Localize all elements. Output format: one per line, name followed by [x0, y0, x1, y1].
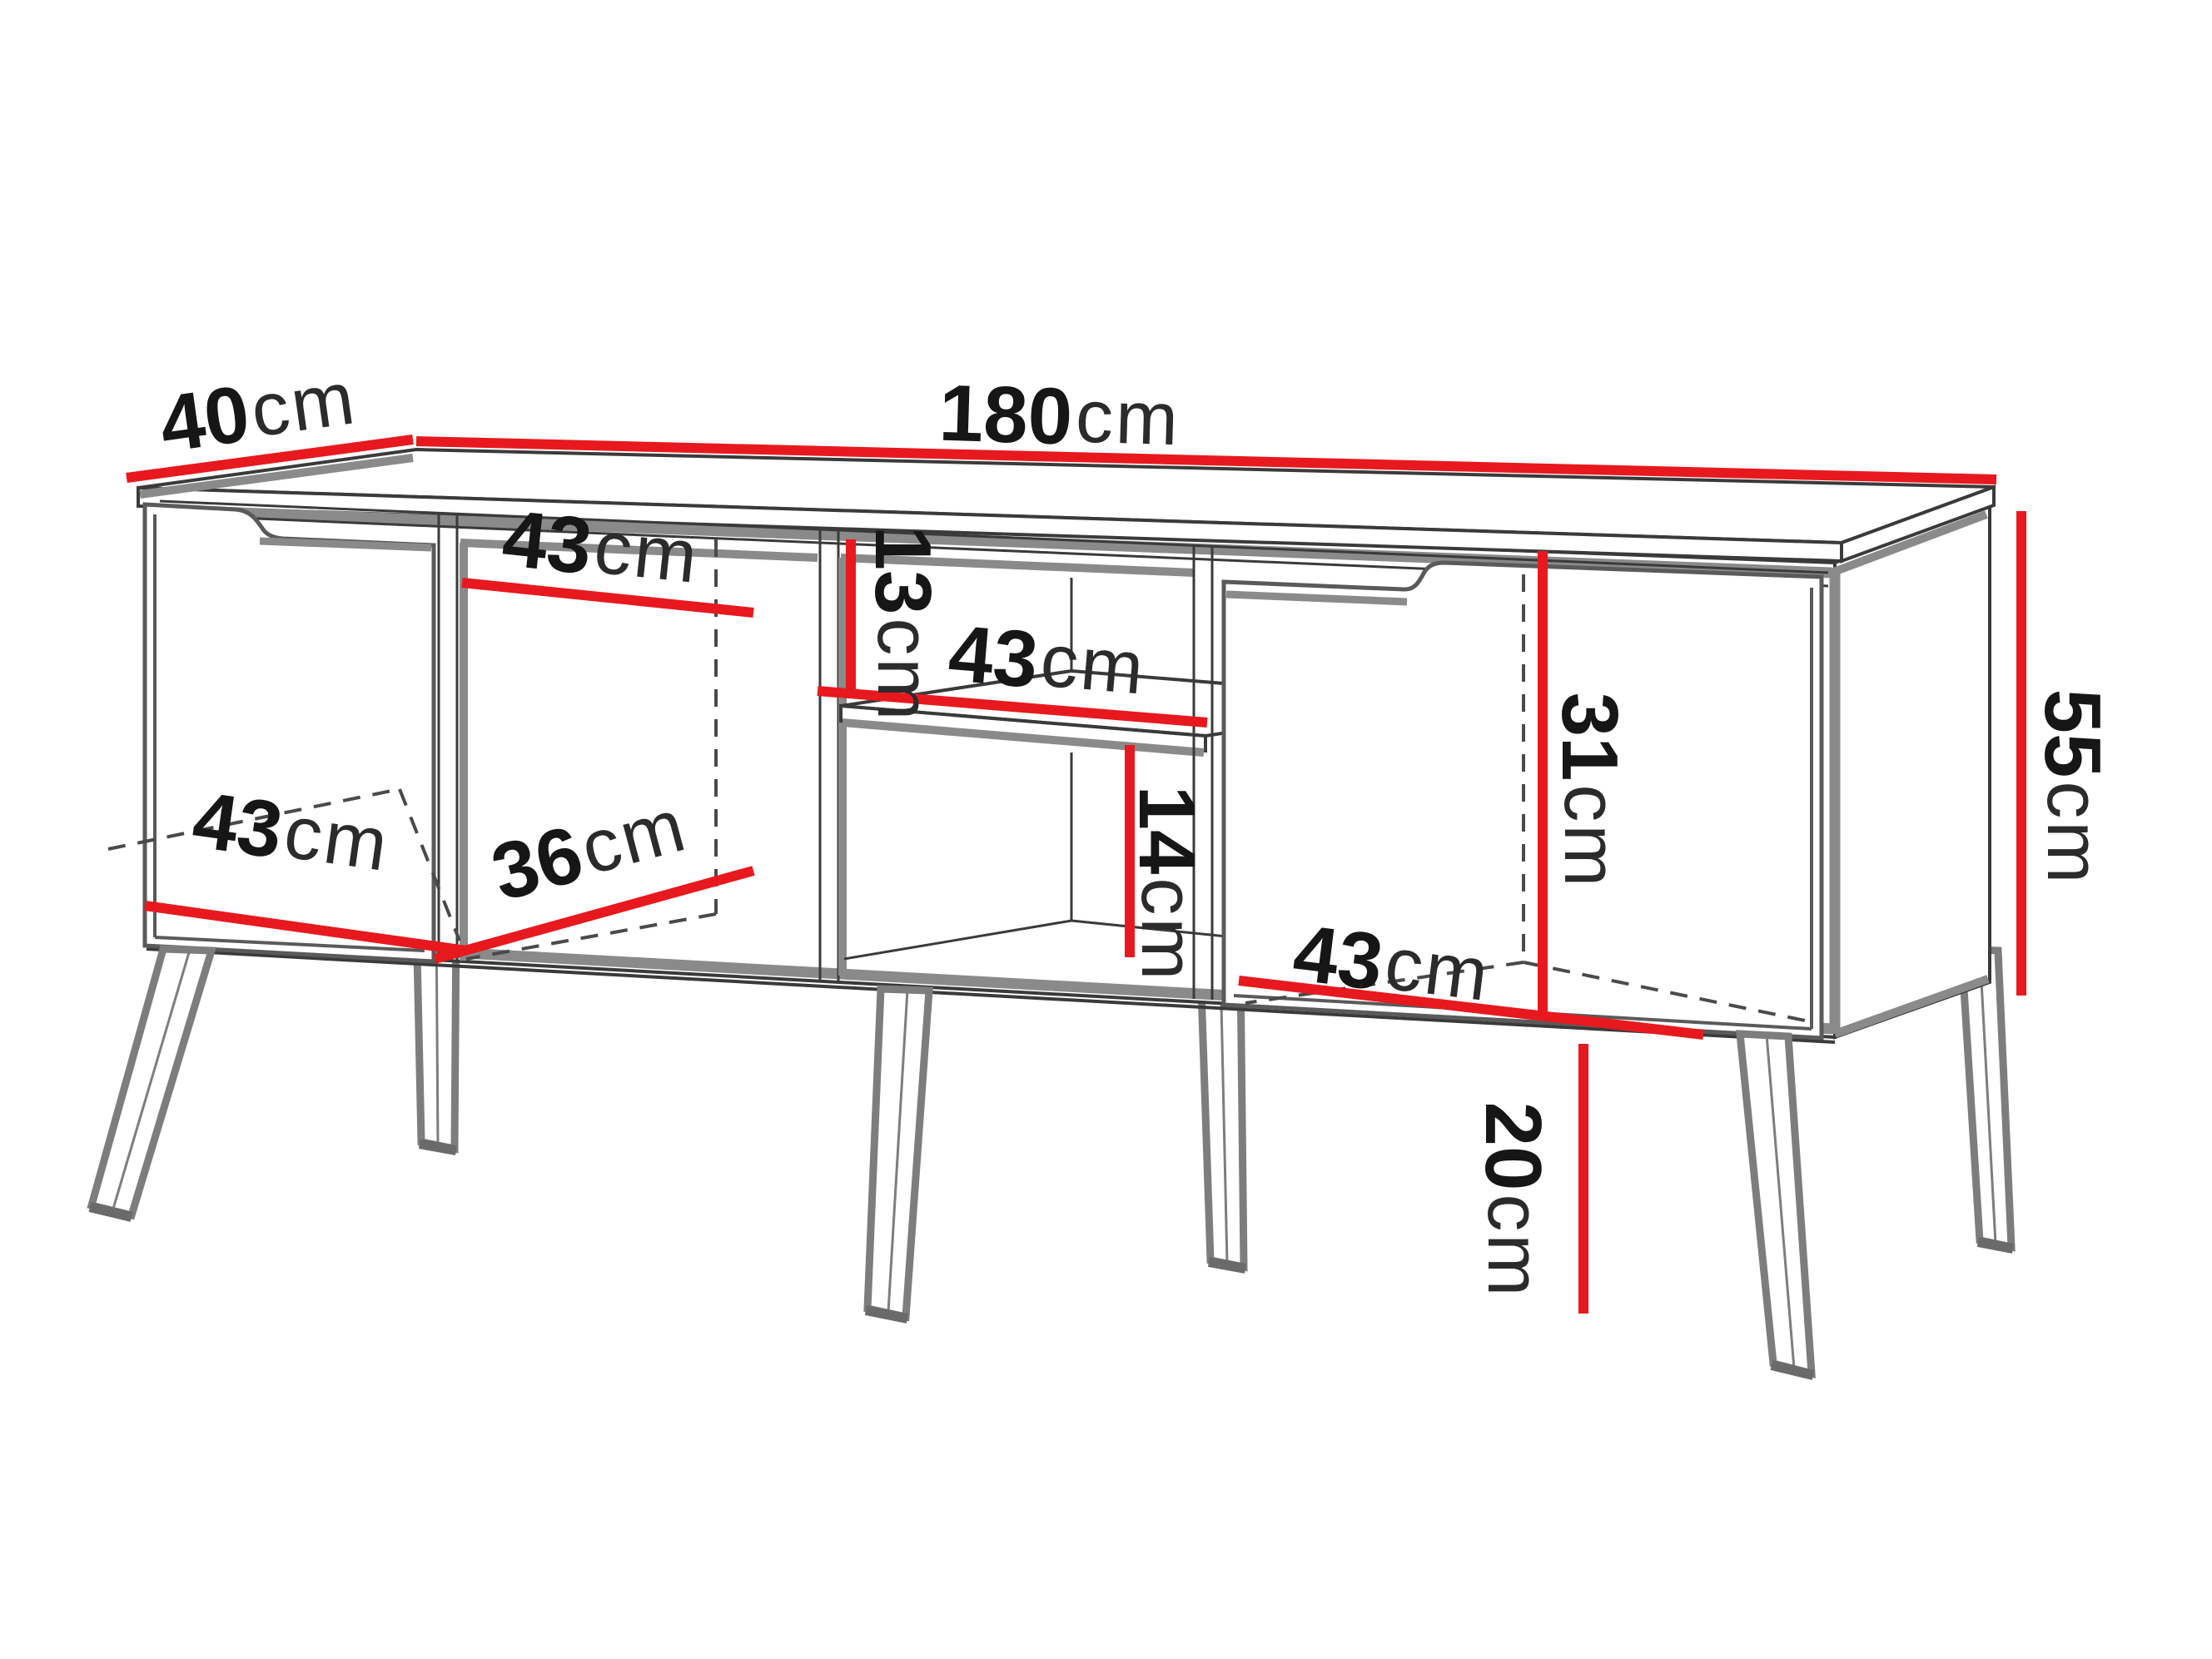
dim-label-leg-height: 20cm	[1469, 1102, 1558, 1299]
diagram-stage: 40cm 180cm 43cm 13cm 43cm 43cm 36cm 14cm…	[0, 0, 2212, 1659]
dim-label-top-width: 180cm	[937, 368, 1181, 464]
leg-front-middle	[866, 989, 929, 1319]
dim-label-body-height: 55cm	[2029, 689, 2118, 887]
dim-label-below-shelf-gap: 14cm	[1123, 786, 1212, 983]
left-door	[145, 504, 434, 961]
tv-stand-dimension-diagram: 40cm 180cm 43cm 13cm 43cm 43cm 36cm 14cm…	[0, 0, 2212, 1659]
leg-back-middle	[1200, 966, 1245, 1269]
dim-label-above-shelf-gap: 13cm	[859, 526, 948, 723]
leg-front-left	[90, 949, 211, 1217]
right-side-panel	[1835, 504, 1990, 1037]
dim-label-right-inner-height: 31cm	[1546, 693, 1635, 890]
leg-back-right	[1961, 949, 2013, 1249]
leg-front-right	[1740, 1034, 1813, 1375]
